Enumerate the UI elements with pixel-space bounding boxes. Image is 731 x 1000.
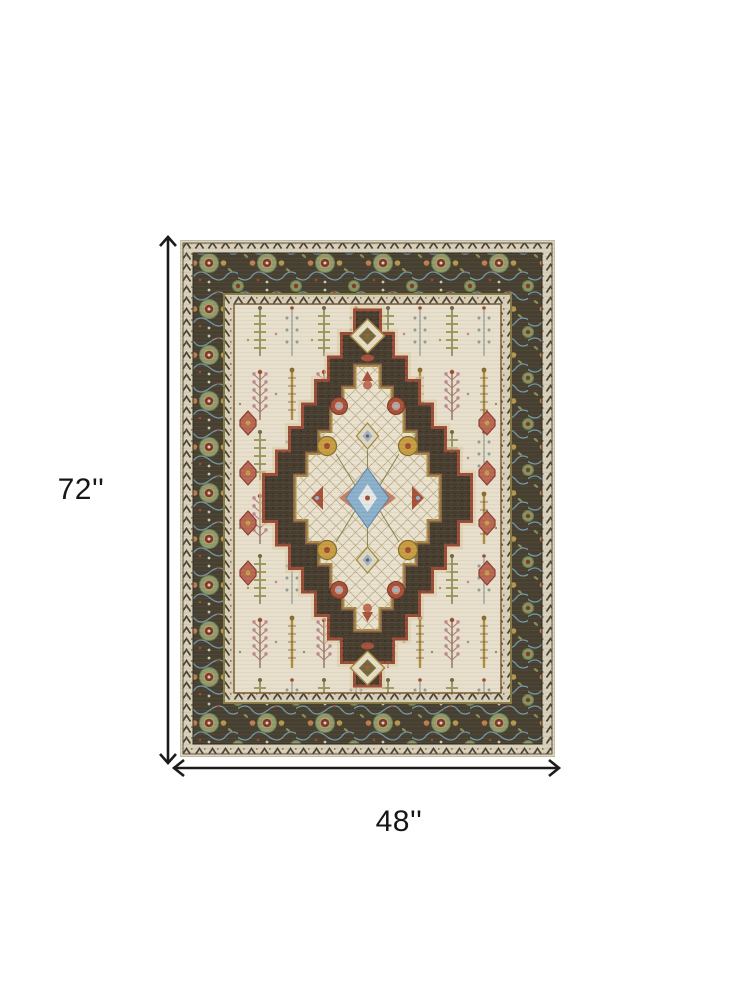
height-dimension-arrow xyxy=(157,231,179,767)
rug-photo xyxy=(180,240,555,757)
width-dimension-label: 48'' xyxy=(362,806,436,838)
rug-weave-texture xyxy=(180,240,555,757)
width-dimension-arrow xyxy=(167,756,565,780)
product-dimension-image: 72'' 48'' xyxy=(0,0,731,1000)
height-dimension-label: 72'' xyxy=(46,474,116,506)
